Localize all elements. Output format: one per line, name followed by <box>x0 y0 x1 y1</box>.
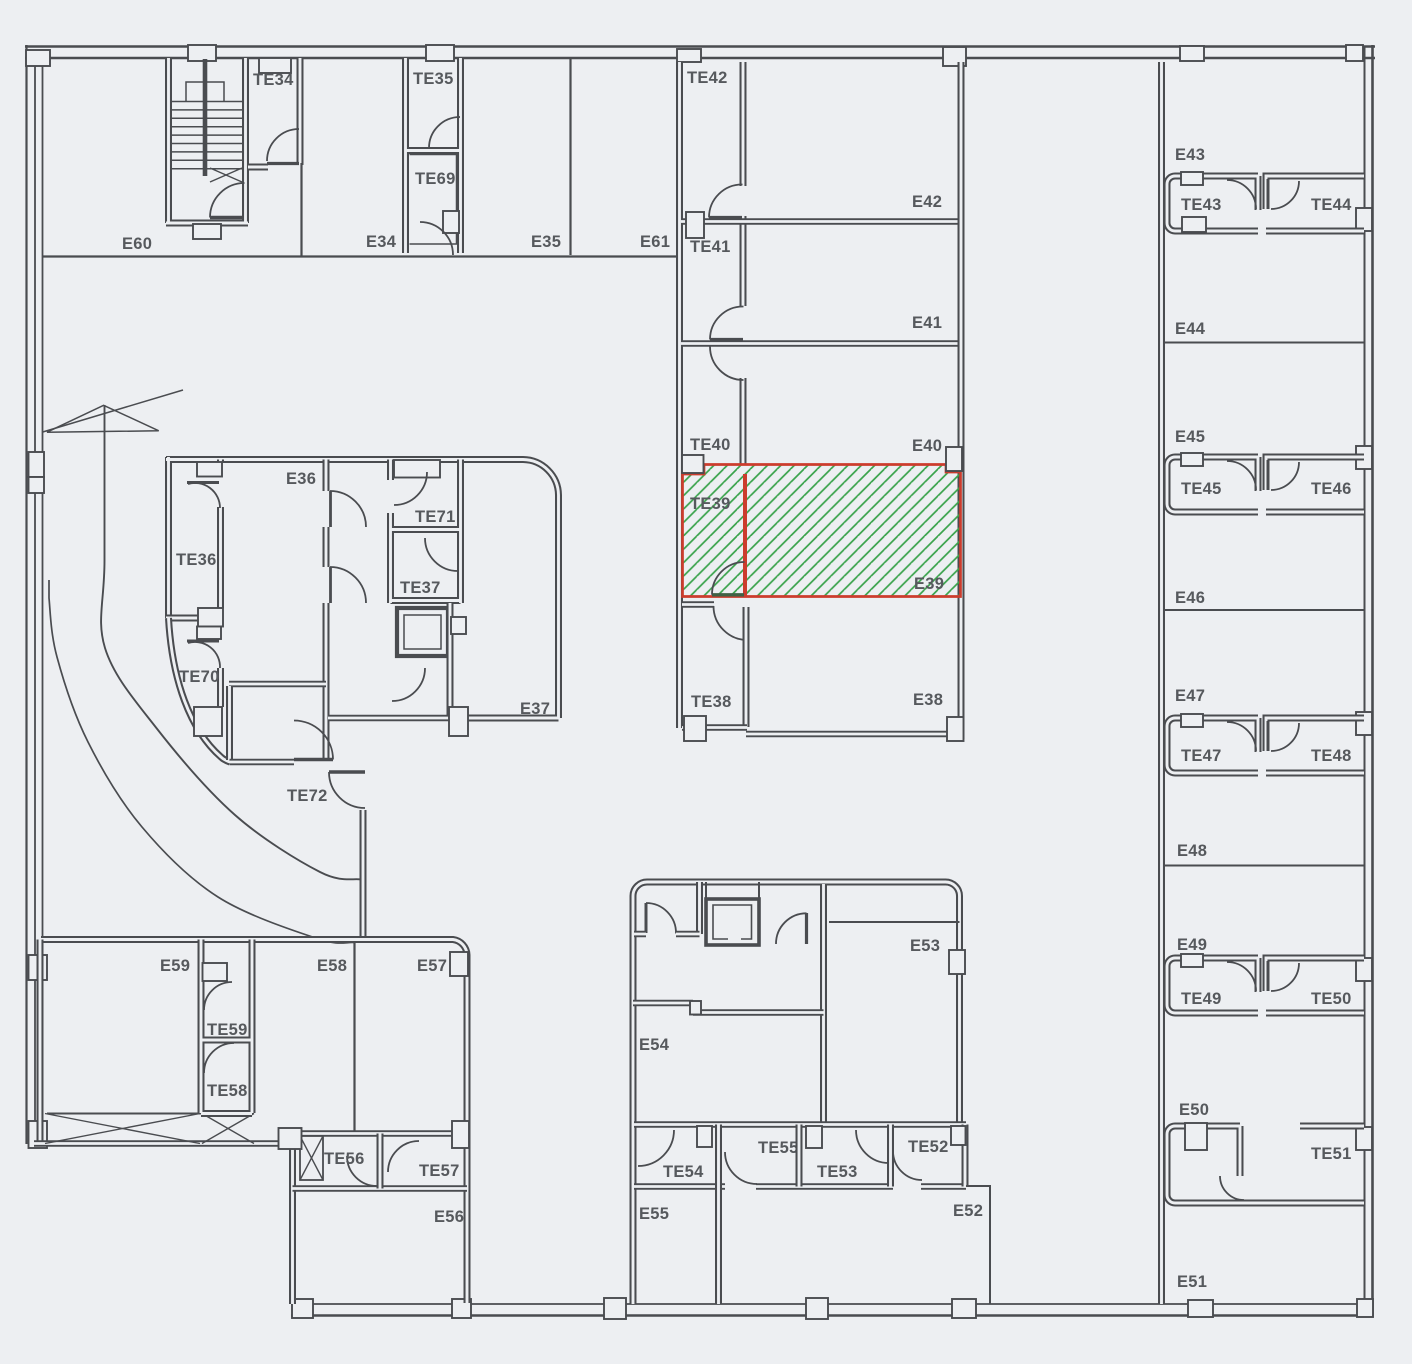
svg-text:TE47: TE47 <box>1181 747 1222 765</box>
svg-text:TE44: TE44 <box>1311 196 1352 214</box>
svg-text:E41: E41 <box>912 314 942 332</box>
svg-text:E49: E49 <box>1177 936 1207 954</box>
svg-text:TE34: TE34 <box>253 71 294 89</box>
svg-text:TE72: TE72 <box>287 787 328 805</box>
svg-text:E44: E44 <box>1175 320 1206 338</box>
svg-text:TE50: TE50 <box>1311 990 1352 1008</box>
svg-text:E38: E38 <box>913 691 943 709</box>
svg-text:TE40: TE40 <box>690 436 731 454</box>
svg-text:TE41: TE41 <box>690 238 731 256</box>
svg-text:TE52: TE52 <box>908 1138 949 1156</box>
svg-text:E40: E40 <box>912 437 942 455</box>
svg-text:E45: E45 <box>1175 428 1205 446</box>
svg-text:TE57: TE57 <box>419 1162 460 1180</box>
svg-text:TE38: TE38 <box>691 693 732 711</box>
svg-text:TE42: TE42 <box>687 69 728 87</box>
svg-text:E37: E37 <box>520 700 550 718</box>
svg-text:E60: E60 <box>122 235 152 253</box>
svg-text:E50: E50 <box>1179 1101 1209 1119</box>
svg-text:TE43: TE43 <box>1181 196 1222 214</box>
svg-text:E61: E61 <box>640 233 670 251</box>
svg-text:TE46: TE46 <box>1311 480 1352 498</box>
svg-text:E46: E46 <box>1175 589 1205 607</box>
svg-text:TE37: TE37 <box>400 579 441 597</box>
svg-text:E42: E42 <box>912 193 942 211</box>
svg-text:TE58: TE58 <box>207 1082 248 1100</box>
svg-text:E36: E36 <box>286 470 316 488</box>
svg-text:E51: E51 <box>1177 1273 1207 1291</box>
svg-text:E39: E39 <box>914 575 944 593</box>
svg-text:TE51: TE51 <box>1311 1145 1352 1163</box>
svg-text:TE49: TE49 <box>1181 990 1222 1008</box>
svg-text:TE45: TE45 <box>1181 480 1222 498</box>
svg-text:TE69: TE69 <box>415 170 456 188</box>
svg-text:E56: E56 <box>434 1208 464 1226</box>
svg-text:E35: E35 <box>531 233 561 251</box>
svg-text:E52: E52 <box>953 1202 983 1220</box>
svg-text:E53: E53 <box>910 937 940 955</box>
svg-text:TE35: TE35 <box>413 70 454 88</box>
svg-text:E48: E48 <box>1177 842 1207 860</box>
svg-text:E47: E47 <box>1175 687 1205 705</box>
svg-text:E34: E34 <box>366 233 397 251</box>
svg-text:TE56: TE56 <box>324 1150 365 1168</box>
svg-text:TE39: TE39 <box>690 495 731 513</box>
svg-text:E43: E43 <box>1175 146 1205 164</box>
svg-text:E55: E55 <box>639 1205 669 1223</box>
svg-text:TE36: TE36 <box>176 551 217 569</box>
svg-text:TE54: TE54 <box>663 1163 704 1181</box>
svg-text:E59: E59 <box>160 957 190 975</box>
svg-text:E54: E54 <box>639 1036 670 1054</box>
svg-text:TE71: TE71 <box>415 508 456 526</box>
svg-text:TE59: TE59 <box>207 1021 248 1039</box>
svg-text:E57: E57 <box>417 957 447 975</box>
svg-text:TE53: TE53 <box>817 1163 858 1181</box>
svg-text:TE55: TE55 <box>758 1139 799 1157</box>
svg-text:TE70: TE70 <box>179 668 220 686</box>
svg-text:TE48: TE48 <box>1311 747 1352 765</box>
svg-text:E58: E58 <box>317 957 347 975</box>
